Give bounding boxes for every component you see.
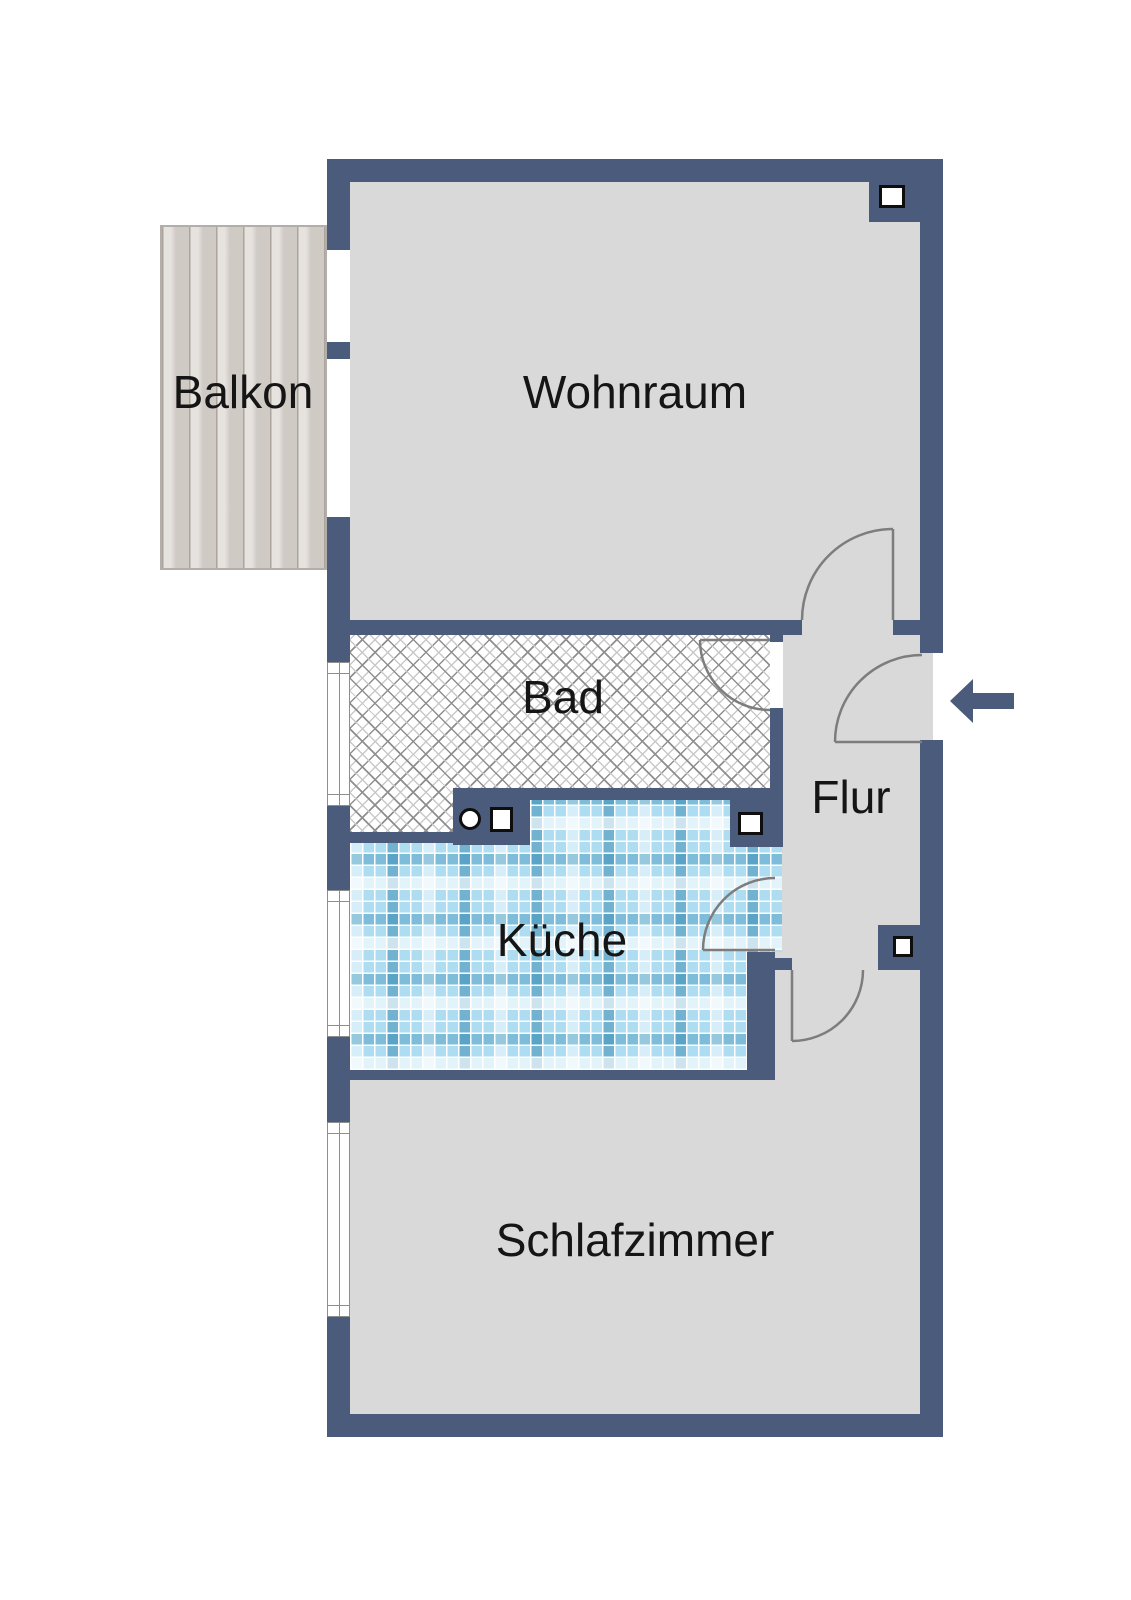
door-overlay (0, 0, 1131, 1600)
door-wohnraum (802, 529, 893, 620)
fixture-square-symbol (490, 807, 513, 832)
room-label-balkon: Balkon (173, 365, 314, 419)
shaft-square-symbol (879, 185, 905, 208)
floorplan-canvas: Balkon Wohnraum Bad Flur Küche Schlafzim… (0, 0, 1131, 1600)
room-label-kueche: Küche (497, 913, 627, 967)
shaft-square-symbol (738, 812, 763, 835)
door-schlafzimmer (792, 970, 863, 1041)
fixture-circle-symbol (459, 808, 481, 830)
room-label-bad: Bad (522, 670, 604, 724)
room-label-wohnraum: Wohnraum (523, 365, 747, 419)
door-entrance (835, 655, 922, 742)
entrance-arrow-icon (950, 679, 1014, 723)
room-label-flur: Flur (811, 770, 890, 824)
shaft-square-symbol (893, 936, 913, 957)
door-bad (700, 640, 770, 710)
room-label-schlafzimmer: Schlafzimmer (496, 1213, 775, 1267)
door-kueche (703, 878, 775, 950)
